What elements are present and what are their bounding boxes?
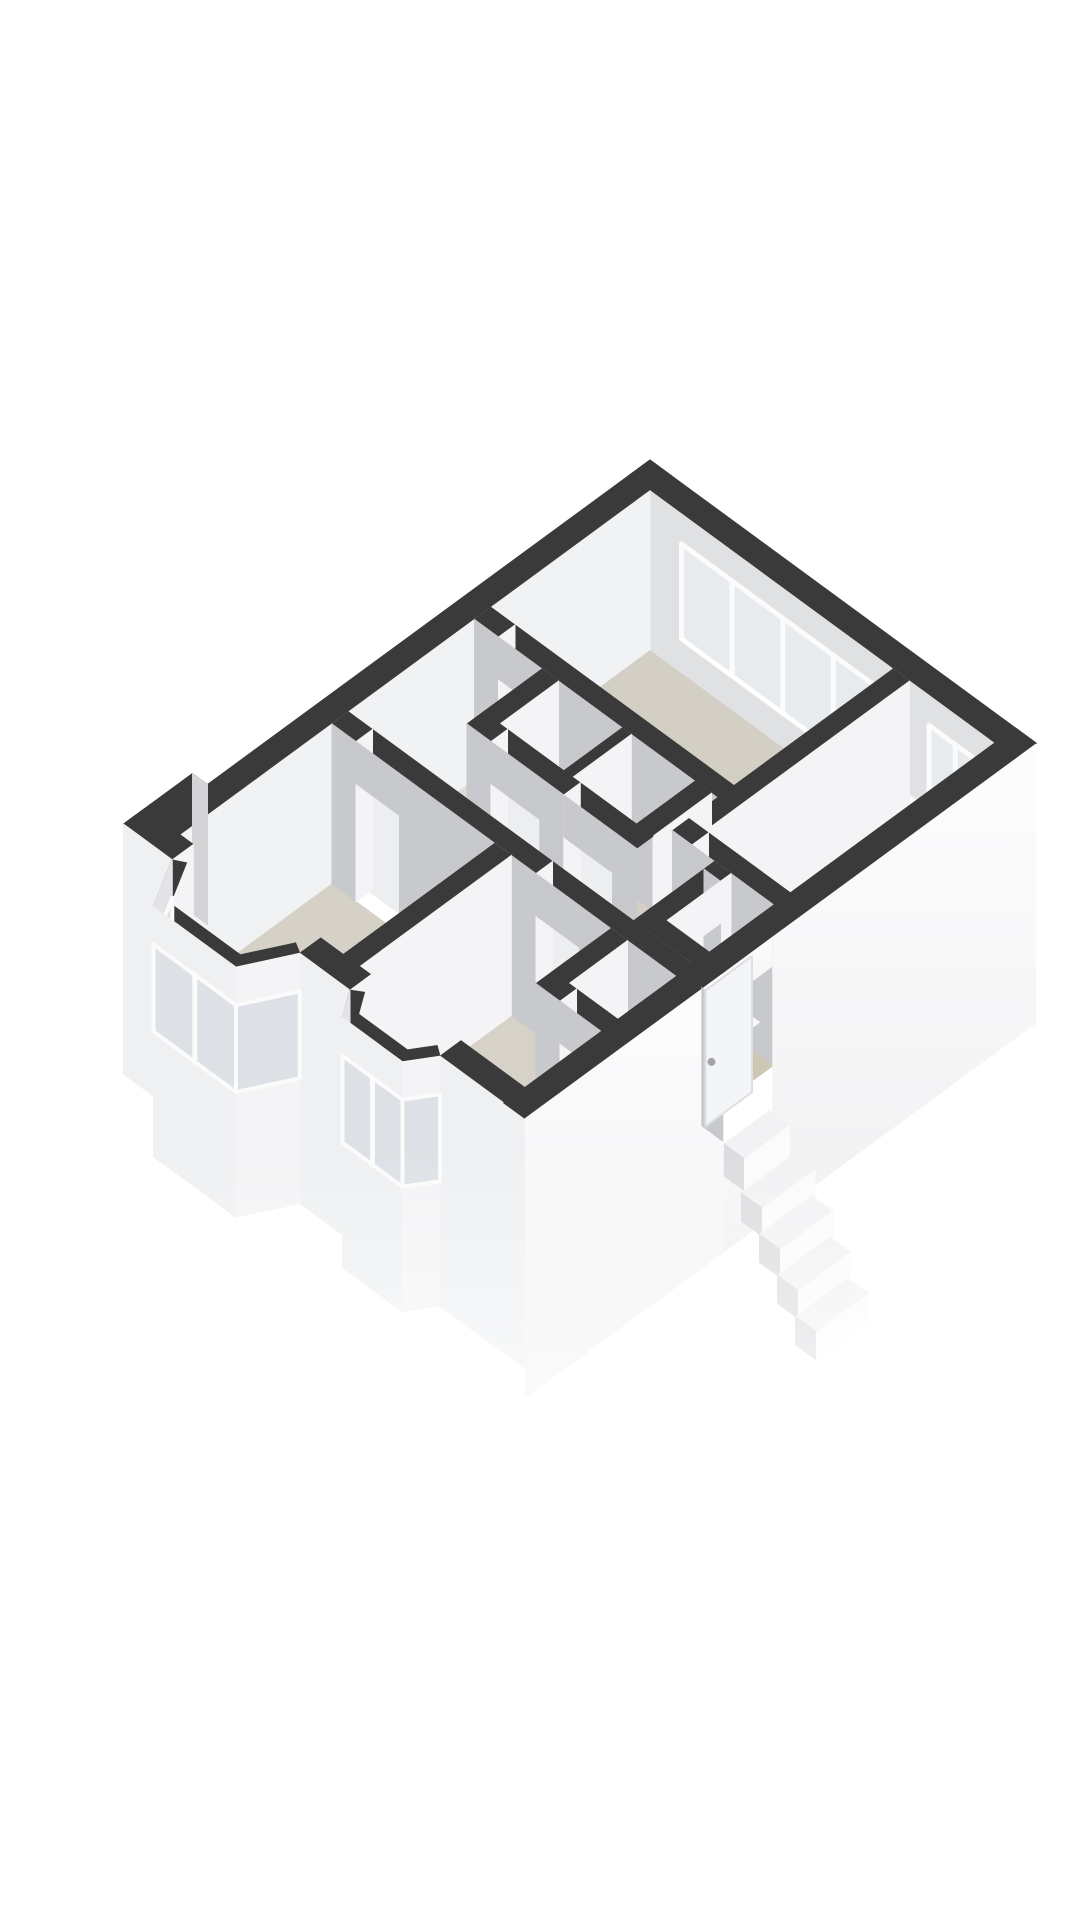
wall-face bbox=[332, 724, 356, 902]
door-handle bbox=[708, 1058, 716, 1066]
bottom-fade bbox=[0, 1150, 1080, 1920]
nw-notch-face bbox=[193, 774, 208, 925]
ne-wall-face bbox=[650, 491, 682, 674]
living-bay-window-right-glass bbox=[236, 991, 300, 1092]
floorplan-3d-view bbox=[0, 0, 1080, 1920]
floorplan-svg bbox=[0, 0, 1080, 1920]
